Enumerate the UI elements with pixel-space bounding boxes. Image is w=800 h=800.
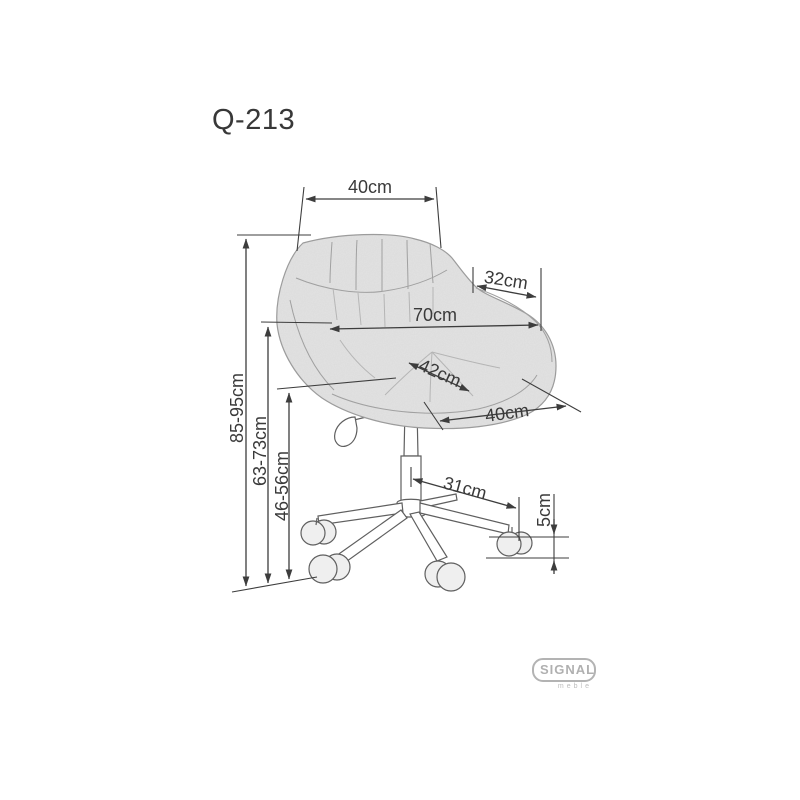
chair-diagram (0, 0, 800, 800)
dim-label-back-width: 40cm (348, 178, 392, 196)
dim-label-seat-height: 46-56cm (273, 451, 291, 521)
dim-label-back-height: 63-73cm (251, 416, 269, 486)
brand-name: SIGNAL (532, 658, 596, 682)
chair-shell (277, 234, 556, 428)
model-title: Q-213 (212, 106, 295, 135)
dimension-diagram-page: Q-213 40cm 85-95cm 63-73cm 46-56cm 70cm … (0, 0, 800, 800)
dim-label-total-width: 70cm (413, 306, 457, 324)
brand-logo: SIGNAL meble (532, 658, 596, 690)
chair-base (301, 408, 532, 591)
dim-label-total-height: 85-95cm (228, 373, 246, 443)
brand-tagline: meble (532, 683, 596, 690)
dim-label-caster-height: 5cm (535, 493, 553, 527)
